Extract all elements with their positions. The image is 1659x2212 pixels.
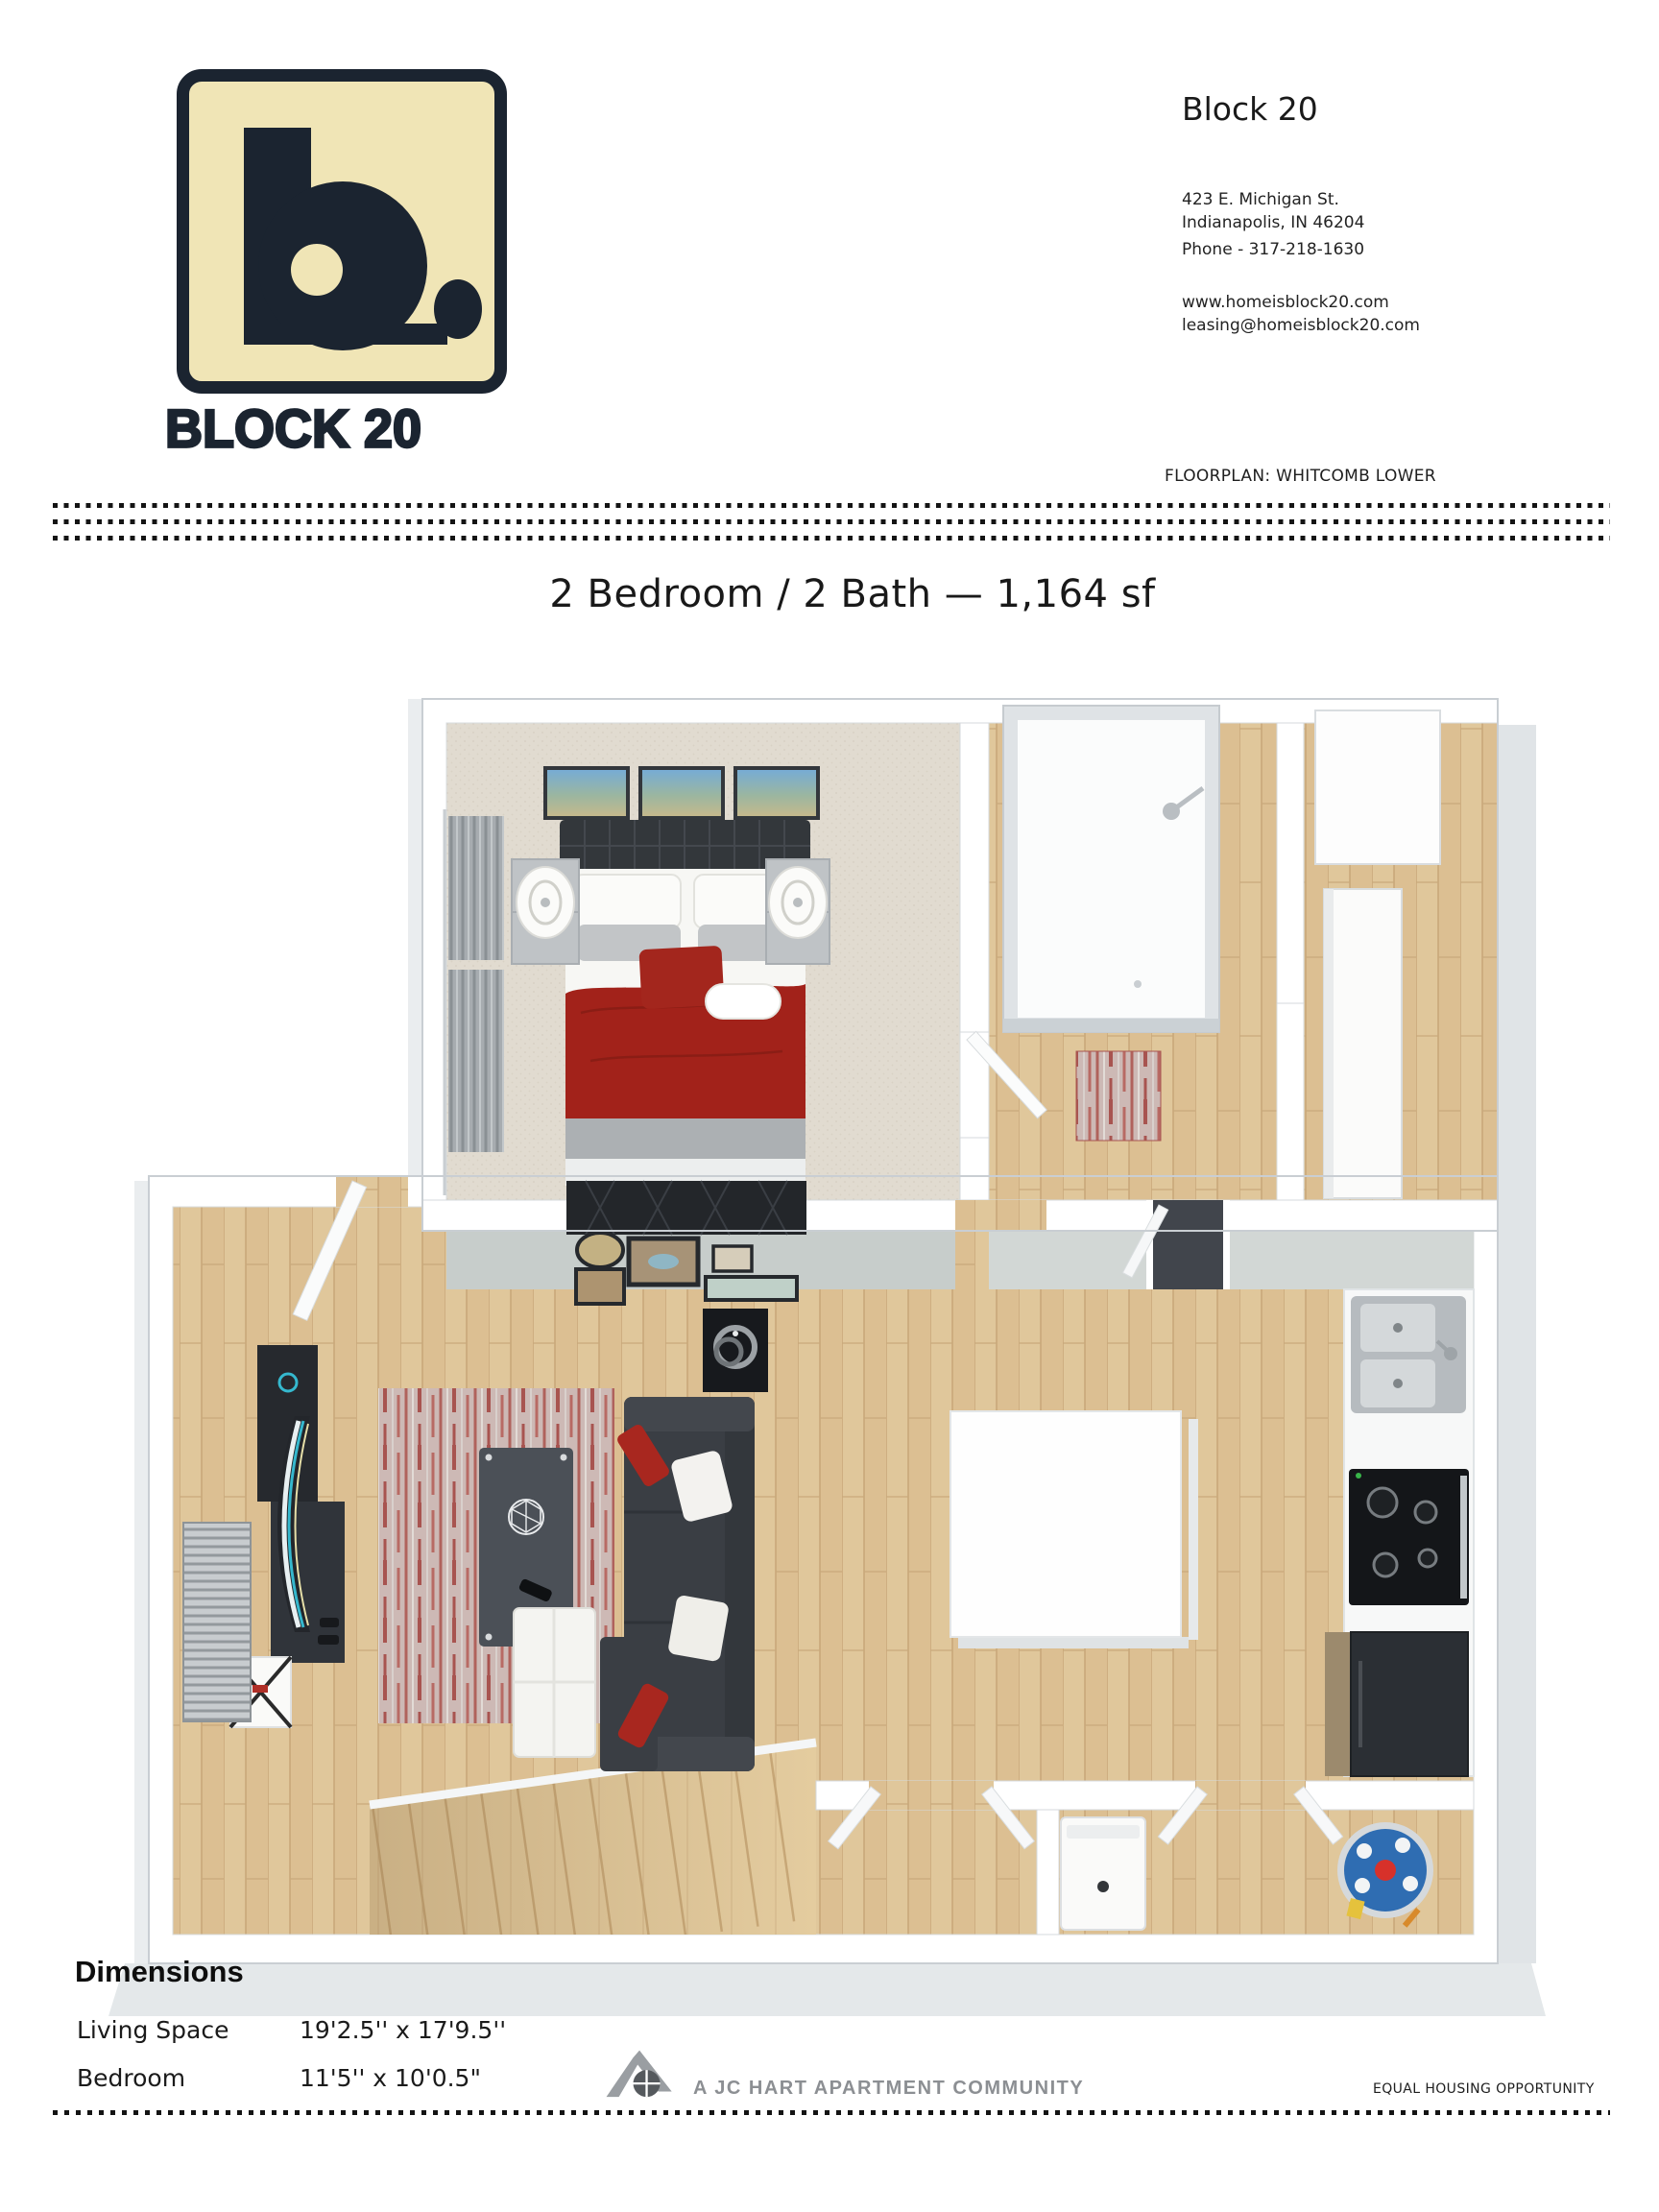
address-line2: Indianapolis, IN 46204 xyxy=(1182,211,1364,234)
dimension-label-bedroom: Bedroom xyxy=(77,2064,185,2092)
dotted-separator-row2 xyxy=(53,519,1610,524)
nightstand-right xyxy=(766,859,829,964)
property-address: 423 E. Michigan St. Indianapolis, IN 462… xyxy=(1182,188,1364,234)
nightstand-left xyxy=(512,859,579,964)
address-line1: 423 E. Michigan St. xyxy=(1182,188,1364,211)
property-name: Block 20 xyxy=(1182,90,1318,128)
property-contacts: www.homeisblock20.com leasing@homeisbloc… xyxy=(1182,291,1420,337)
stove-cooktop xyxy=(1349,1469,1469,1605)
dimension-label-living-space: Living Space xyxy=(77,2016,228,2044)
wall-art-pictures xyxy=(545,768,818,818)
side-table-sculpture xyxy=(703,1309,768,1392)
bath-rug xyxy=(1076,1051,1161,1141)
floorplan-image xyxy=(91,696,1575,2016)
property-email[interactable]: leasing@homeisblock20.com xyxy=(1182,314,1420,337)
property-website[interactable]: www.homeisblock20.com xyxy=(1182,291,1420,314)
equal-housing-label: EQUAL HOUSING OPPORTUNITY xyxy=(1373,2081,1595,2097)
logo-b-monogram-icon xyxy=(189,82,494,381)
dimensions-heading: Dimensions xyxy=(75,1955,244,1989)
jc-hart-community-label: A JC HART APARTMENT COMMUNITY xyxy=(693,2078,1084,2100)
block20-logo xyxy=(177,69,507,394)
kitchen-counter xyxy=(1325,1289,1474,1776)
page-title: 2 Bedroom / 2 Bath — 1,164 sf xyxy=(23,572,1659,616)
dotted-separator-row3 xyxy=(53,536,1610,541)
refrigerator xyxy=(1325,1632,1468,1776)
ottoman xyxy=(514,1608,595,1757)
dotted-separator-row1 xyxy=(53,503,1610,508)
logo-wordmark: BLOCK 20 xyxy=(165,398,515,460)
footer-dotted-separator xyxy=(53,2110,1610,2115)
bedroom-window-curtains xyxy=(445,809,504,1195)
living-window-blinds xyxy=(183,1523,251,1721)
dimension-value-bedroom: 11'5'' x 10'0.5" xyxy=(300,2064,481,2092)
water-heater xyxy=(1337,1822,1433,1928)
walk-in-shower xyxy=(1003,706,1219,1032)
kitchen-island xyxy=(950,1411,1198,1648)
floorplan-flyer-page: { "header": { "property_name": "Block 20… xyxy=(0,0,1659,2212)
kitchen-sink xyxy=(1351,1296,1466,1413)
washer xyxy=(1061,1817,1145,1930)
jc-hart-roof-icon xyxy=(603,2045,678,2099)
property-phone: Phone - 317-218-1630 xyxy=(1182,240,1364,259)
floorplan-name-label: FLOORPLAN: WHITCOMB LOWER xyxy=(1165,467,1436,486)
dimension-value-living-space: 19'2.5'' x 17'9.5'' xyxy=(300,2016,506,2044)
